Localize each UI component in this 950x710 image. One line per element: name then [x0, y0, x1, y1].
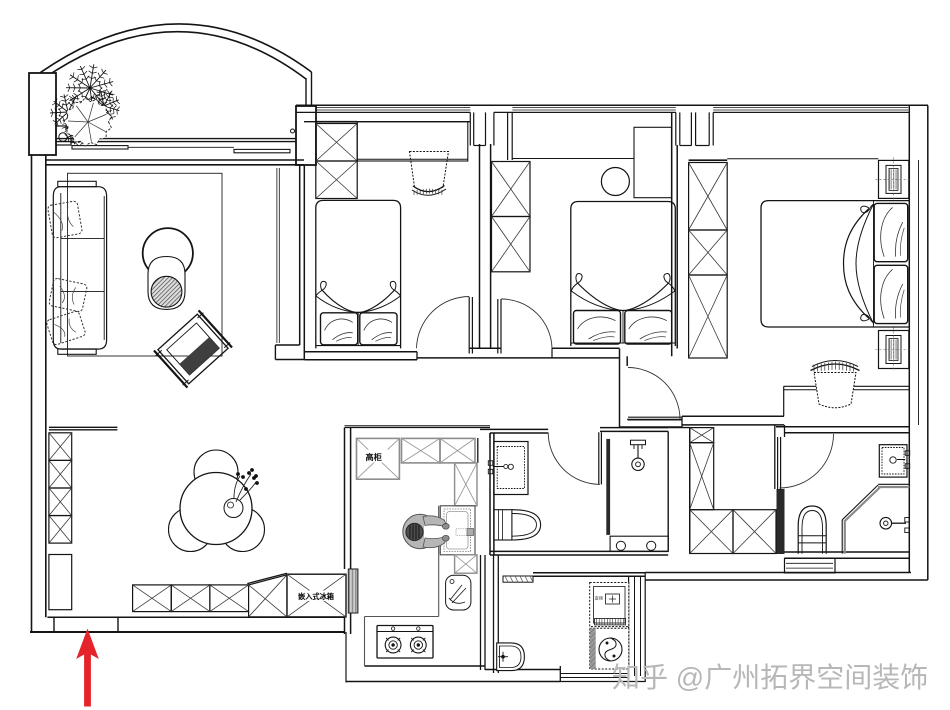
svg-text:变频: 变频 [595, 595, 604, 602]
svg-text:知乎 @广州拓界空间装饰: 知乎 @广州拓界空间装饰 [612, 662, 928, 693]
svg-text:嵌入式冰箱: 嵌入式冰箱 [298, 592, 334, 601]
svg-text:高柜: 高柜 [366, 452, 382, 462]
